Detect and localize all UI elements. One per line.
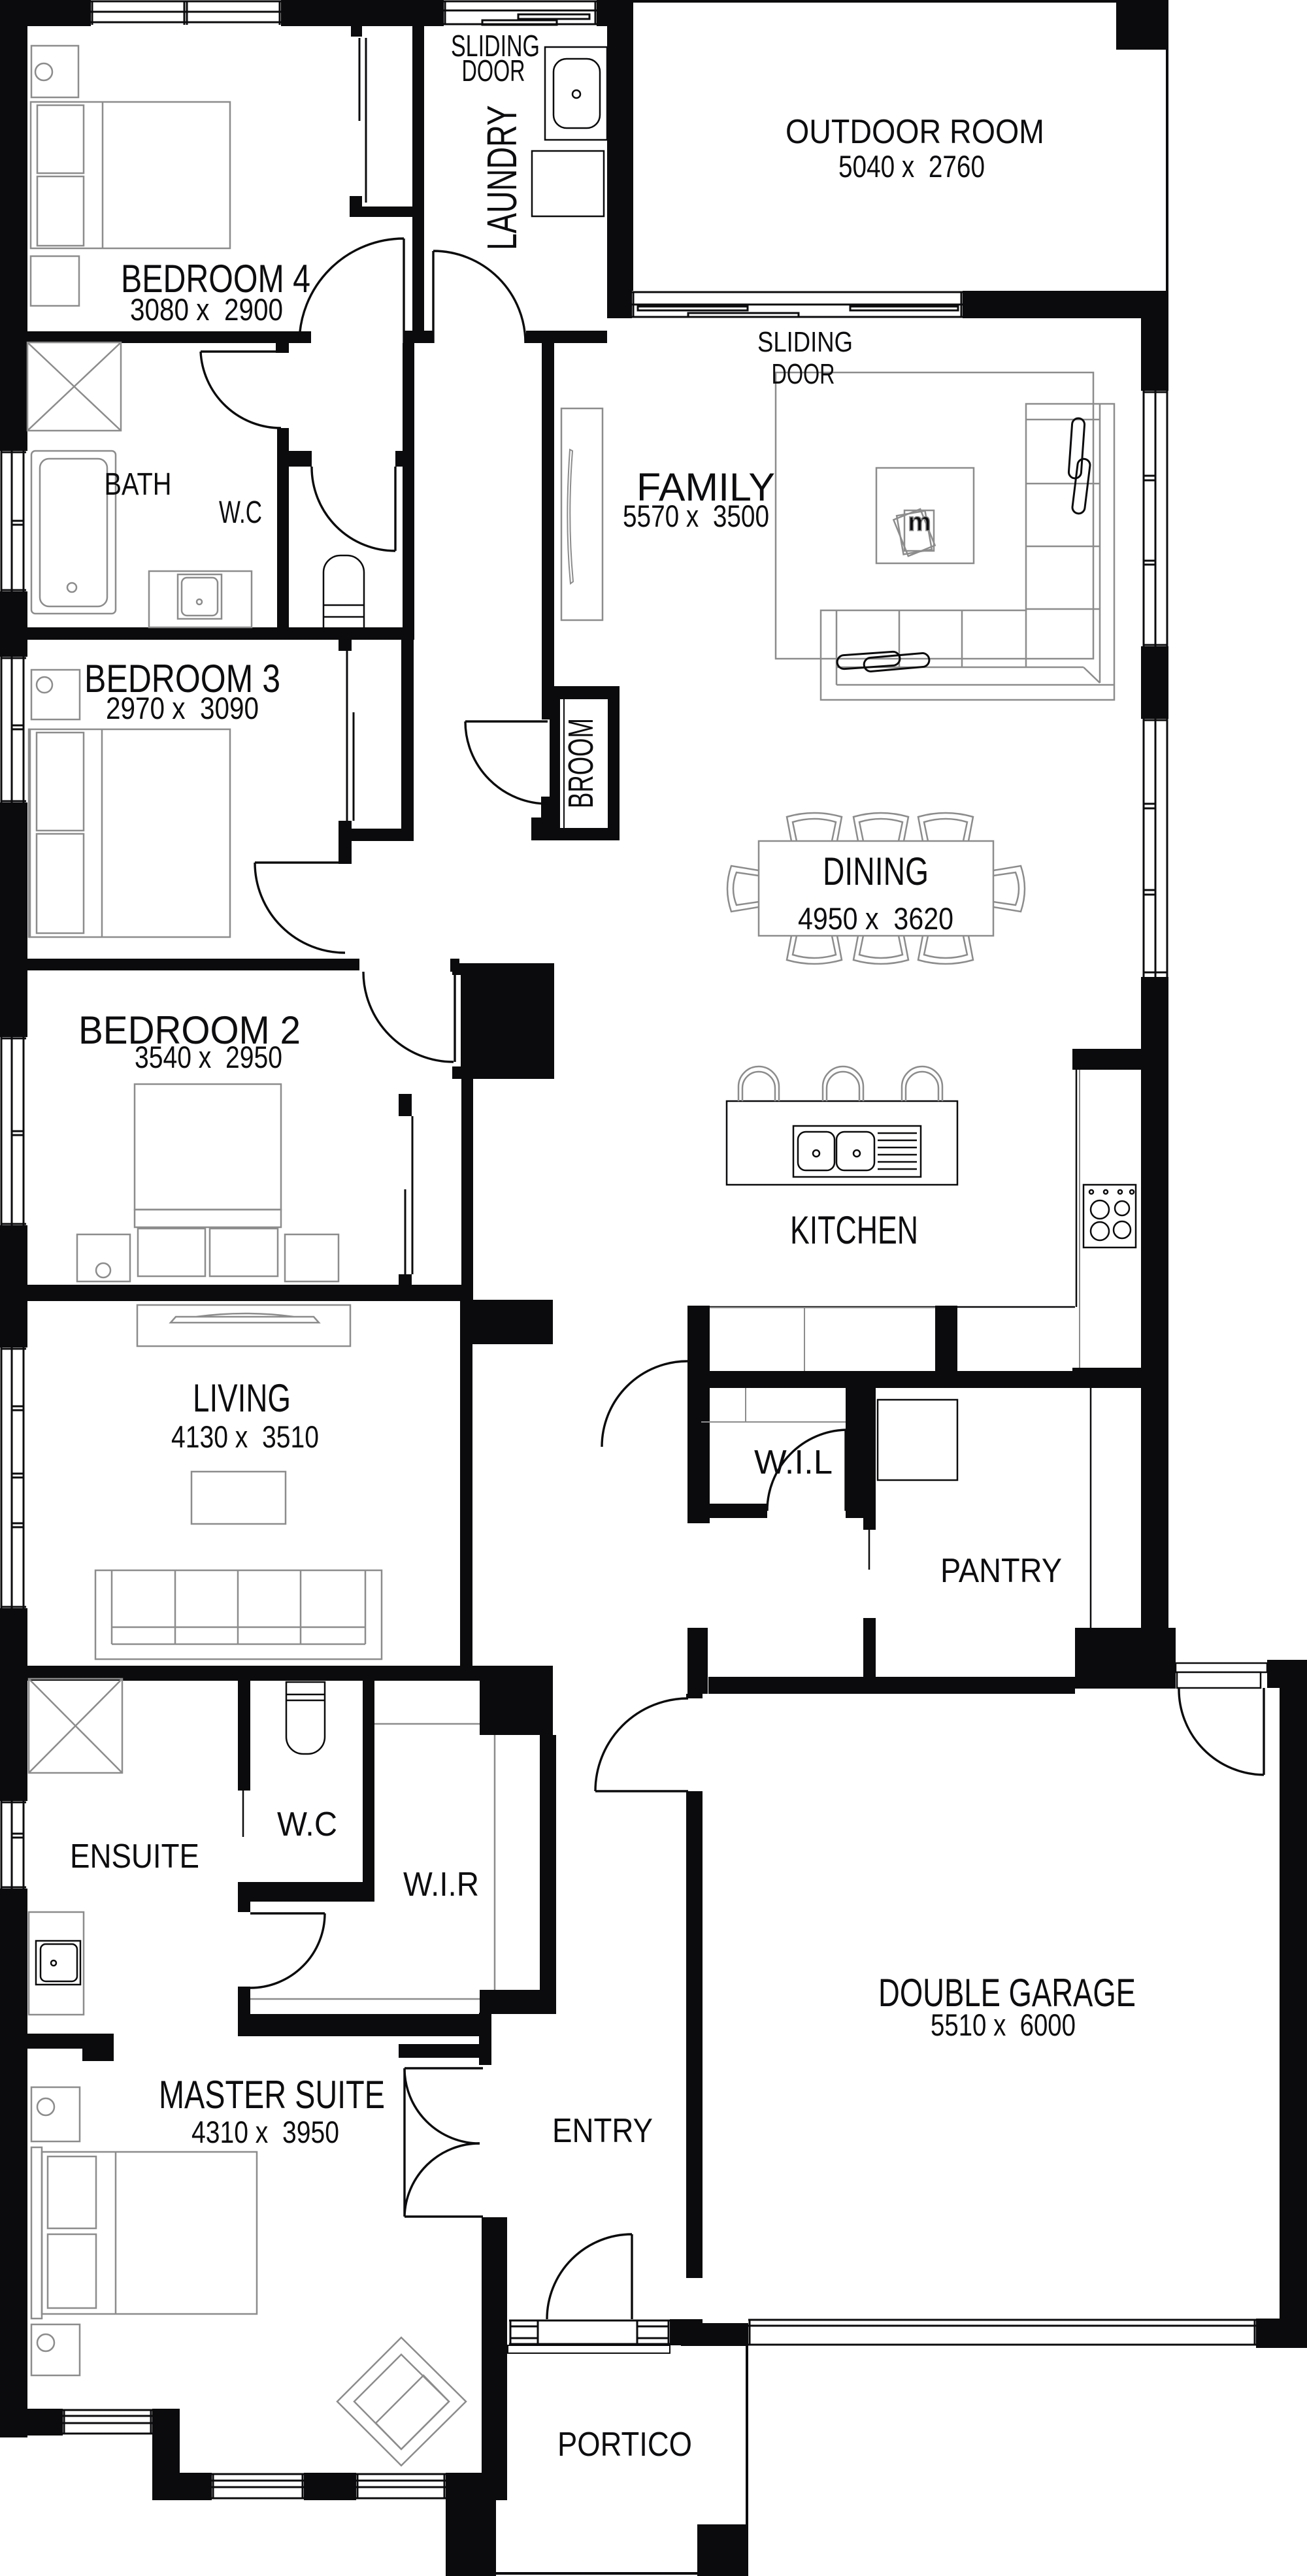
svg-text:5570 x 3500: 5570 x 3500 [623, 499, 769, 533]
svg-text:W.I.L: W.I.L [754, 1444, 833, 1481]
svg-text:5040 x 2760: 5040 x 2760 [838, 149, 985, 184]
svg-text:4130 x 3510: 4130 x 3510 [171, 1419, 319, 1454]
svg-text:3540 x 2950: 3540 x 2950 [135, 1040, 282, 1074]
svg-text:ENSUITE: ENSUITE [70, 1838, 199, 1875]
svg-text:BROOM: BROOM [561, 718, 601, 808]
svg-text:DOOR: DOOR [772, 358, 835, 390]
svg-text:3080 x 2900: 3080 x 2900 [130, 292, 283, 327]
svg-text:ENTRY: ENTRY [552, 2112, 653, 2150]
svg-text:SLIDING: SLIDING [757, 326, 853, 358]
svg-text:LAUNDRY: LAUNDRY [478, 105, 525, 250]
svg-text:m: m [908, 508, 931, 537]
svg-text:MASTER SUITE: MASTER SUITE [159, 2073, 385, 2117]
svg-text:KITCHEN: KITCHEN [790, 1208, 918, 1252]
svg-text:DOOR: DOOR [462, 54, 525, 88]
svg-text:DINING: DINING [823, 850, 929, 893]
svg-text:PORTICO: PORTICO [557, 2426, 692, 2464]
svg-text:W.I.R: W.I.R [403, 1866, 479, 1904]
svg-text:4310 x 3950: 4310 x 3950 [191, 2115, 339, 2149]
svg-text:2970 x 3090: 2970 x 3090 [106, 691, 259, 725]
svg-text:OUTDOOR ROOM: OUTDOOR ROOM [786, 113, 1044, 151]
svg-text:W.C: W.C [219, 495, 262, 530]
svg-text:W.C: W.C [277, 1806, 337, 1843]
svg-text:BATH: BATH [105, 467, 172, 502]
svg-text:PANTRY: PANTRY [940, 1552, 1062, 1590]
svg-text:LIVING: LIVING [193, 1376, 291, 1420]
svg-text:5510 x 6000: 5510 x 6000 [931, 2007, 1076, 2042]
svg-text:4950 x 3620: 4950 x 3620 [798, 901, 953, 936]
